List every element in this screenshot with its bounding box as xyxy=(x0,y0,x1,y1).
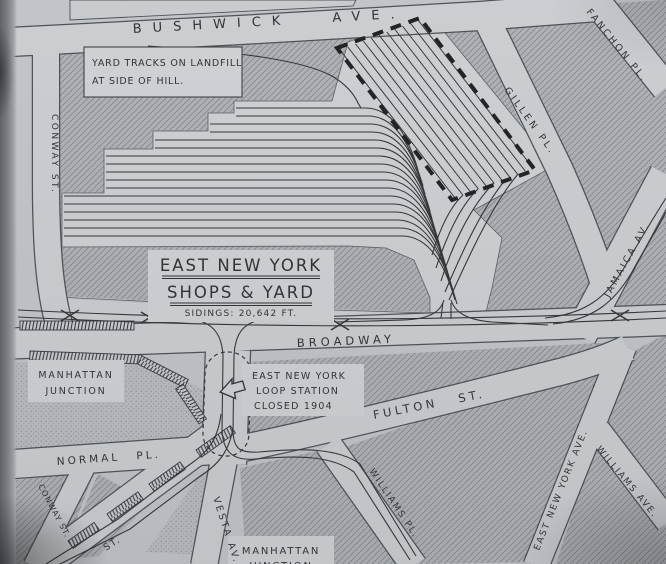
yard-title-line1: EAST NEW YORK xyxy=(160,256,322,275)
manhattan-junction-upper-line2: JUNCTION xyxy=(44,386,106,397)
manhattan-junction-lower-line1: MANHATTAN xyxy=(242,546,320,557)
loop-station-line2: LOOP STATION xyxy=(256,386,339,397)
photographed-map-page: BUSHWICK AVE. FANCHON PL. GILLEN PL. CON… xyxy=(0,0,666,564)
el-bar xyxy=(20,321,134,330)
yard-title-line2: SHOPS & YARD xyxy=(167,283,315,302)
loop-station-line3: CLOSED 1904 xyxy=(254,401,333,412)
manhattan-junction-upper-line1: MANHATTAN xyxy=(38,370,113,381)
street-label-conway-upper: CONWAY ST. xyxy=(49,114,59,194)
loop-station-line1: EAST NEW YORK xyxy=(252,371,346,382)
yard-note-box xyxy=(84,47,242,97)
yard-title-line3: SIDINGS: 20,642 FT. xyxy=(185,309,298,319)
yard-note-line2: AT SIDE OF HILL. xyxy=(92,76,184,87)
map-image: BUSHWICK AVE. FANCHON PL. GILLEN PL. CON… xyxy=(0,0,666,564)
yard-note-line1: YARD TRACKS ON LANDFILL xyxy=(91,58,242,69)
